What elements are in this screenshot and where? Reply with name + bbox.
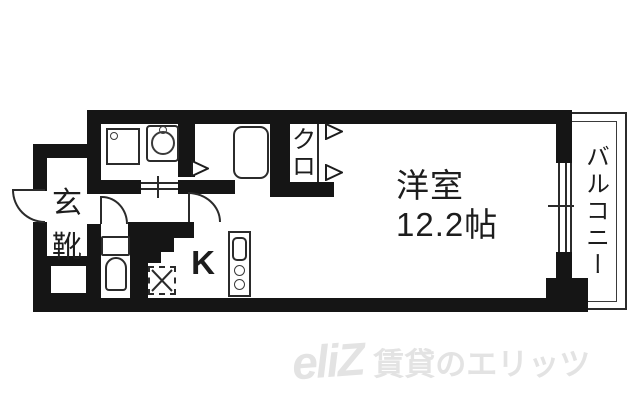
toilet-bowl-icon xyxy=(105,257,127,291)
bath-door-marker-icon xyxy=(191,160,209,177)
watermark: eliZ 賃貸のエリッツ xyxy=(292,334,590,388)
wall xyxy=(33,156,47,191)
stove-cross-icon xyxy=(150,268,174,293)
shoe-cabinet-label: 靴 xyxy=(49,227,85,261)
shoe-cabinet xyxy=(51,266,86,293)
sliding-door-line xyxy=(141,182,178,184)
room-door-arc xyxy=(188,192,221,222)
washbasin-bowl-icon xyxy=(151,131,175,155)
wall xyxy=(178,180,235,194)
window-line xyxy=(565,163,567,252)
floor-plan: 玄 靴 クロ K 洋室 12.2帖 バルコニー eliZ 賃貸のエリッツ xyxy=(0,0,640,416)
main-room-label: 洋室 12.2帖 xyxy=(396,166,546,244)
sliding-door-line xyxy=(141,188,178,190)
kitchen-label: K xyxy=(186,246,220,280)
wall xyxy=(556,110,572,163)
burner-icon xyxy=(234,265,245,276)
balcony-label: バルコニー xyxy=(578,125,612,297)
stove-icon xyxy=(148,266,176,295)
wall xyxy=(148,238,161,263)
kitchen-sink-icon xyxy=(232,237,247,261)
bathtub-icon xyxy=(233,126,269,179)
entrance-door-arc xyxy=(12,190,45,223)
wall xyxy=(130,238,148,298)
washbasin-faucet-icon xyxy=(159,126,167,134)
burner-icon xyxy=(234,279,245,290)
main-room-name: 洋室 xyxy=(396,166,546,205)
closet-door-marker-icon xyxy=(325,123,343,140)
wall xyxy=(87,156,101,194)
wall xyxy=(161,238,174,252)
closet-label: クロ xyxy=(286,123,318,183)
sliding-door-tick xyxy=(157,176,159,198)
wall xyxy=(270,182,334,197)
toilet-tank-icon xyxy=(101,236,130,256)
closet-door-marker-icon xyxy=(325,164,343,181)
wall xyxy=(128,222,194,238)
toilet-door-arc xyxy=(102,196,128,224)
watermark-text: 賃貸のエリッツ xyxy=(373,339,590,384)
wall xyxy=(33,298,587,312)
watermark-logo: eliZ xyxy=(290,332,365,391)
washing-machine-drain-icon xyxy=(110,132,118,140)
wall xyxy=(87,110,570,124)
entrance-label: 玄 xyxy=(49,183,85,217)
window-line xyxy=(558,163,560,252)
wall xyxy=(101,180,141,194)
main-room-size: 12.2帖 xyxy=(396,205,546,244)
window-center-tick xyxy=(548,205,574,207)
